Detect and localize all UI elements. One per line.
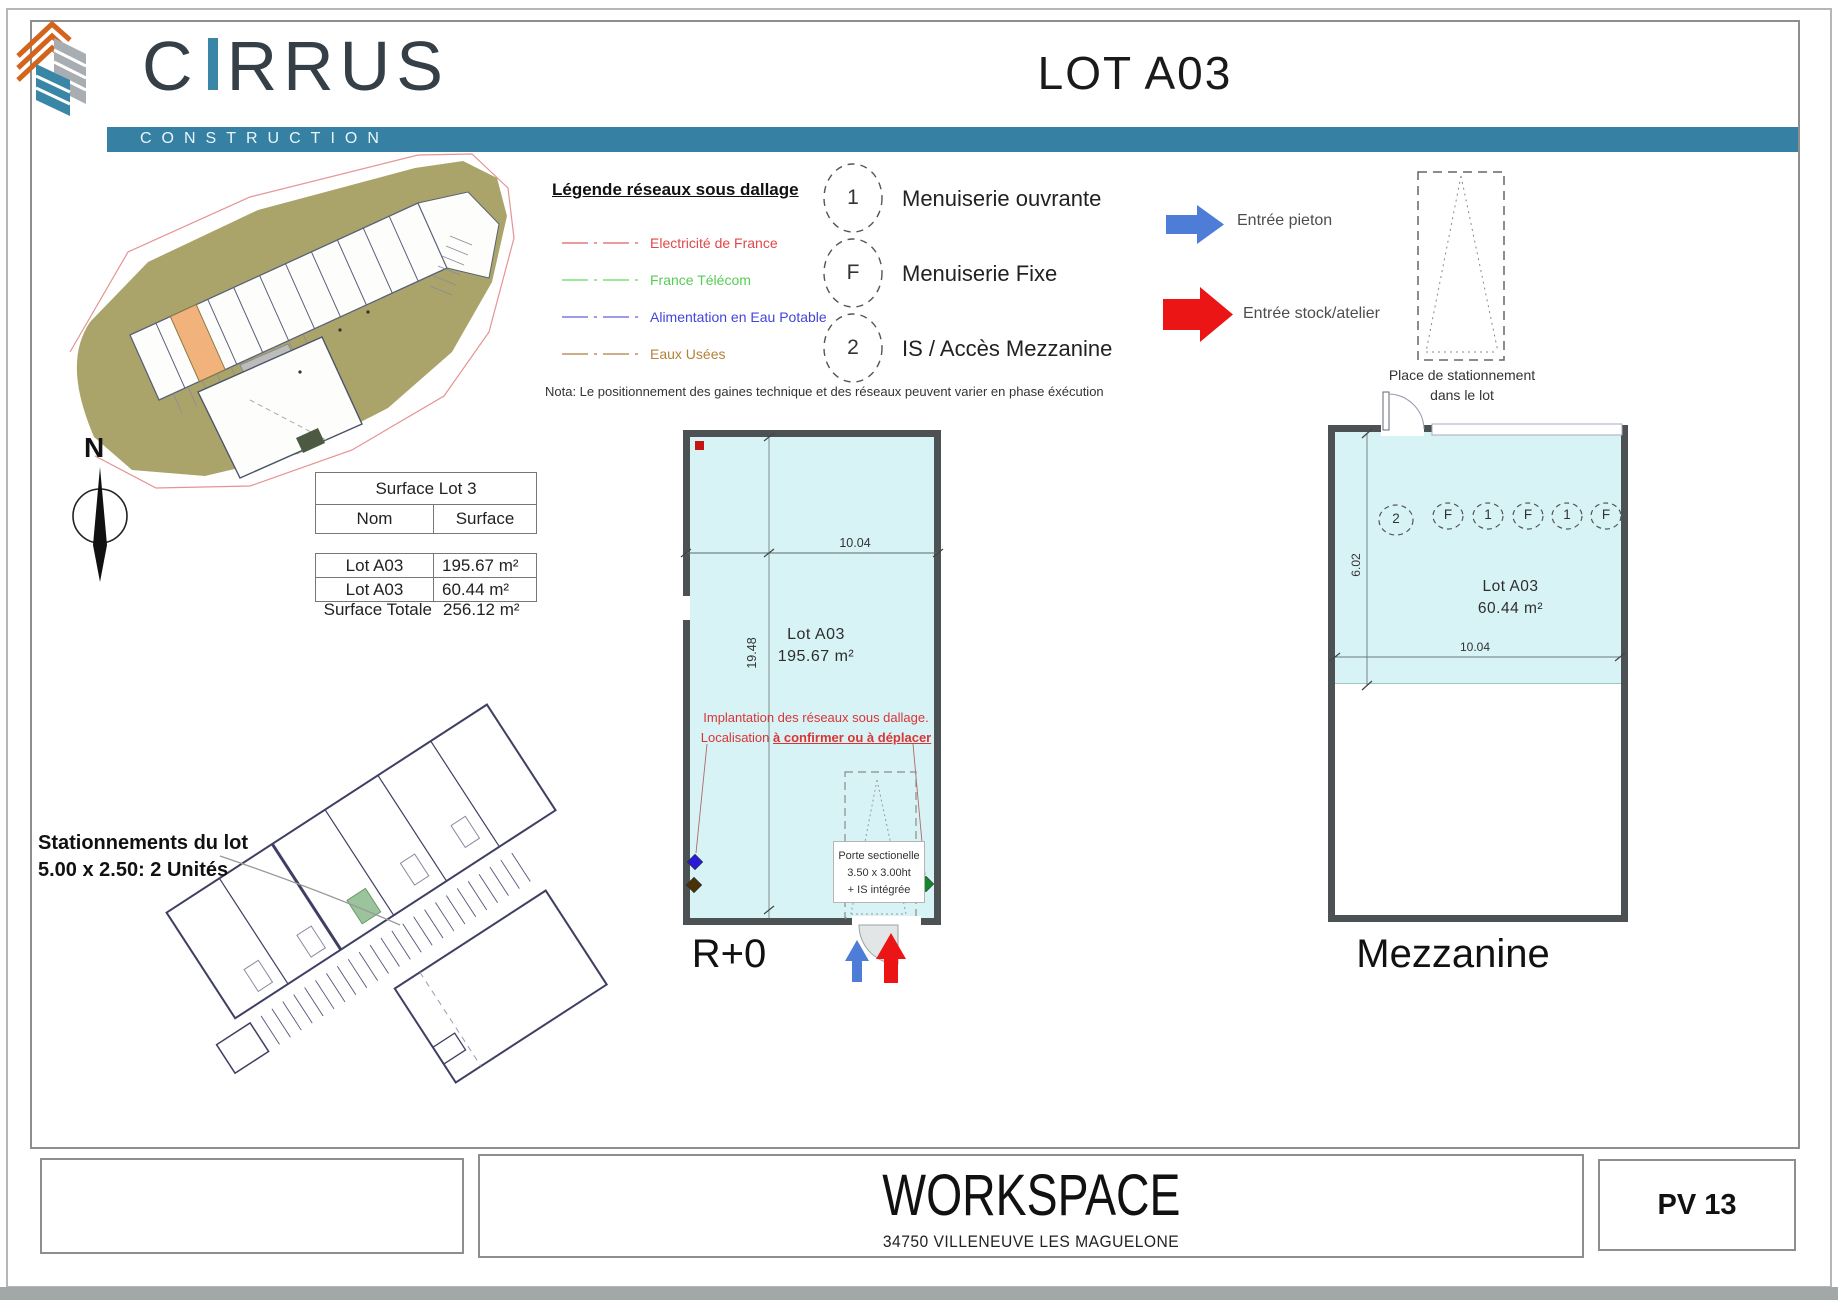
parking-plan-drawing [141, 705, 650, 1181]
legend-item-eau: Alimentation en Eau Potable [650, 309, 827, 325]
project-address: 34750 VILLENEUVE LES MAGUELONE [480, 1232, 1582, 1252]
north-compass-icon [73, 467, 127, 582]
mz-symbol-1: F [1433, 507, 1463, 522]
surface-col-nom: Nom [316, 505, 434, 533]
cirrus-logo-icon [18, 24, 86, 116]
network-marker-blue [687, 854, 703, 870]
legend-item-edf: Electricité de France [650, 235, 778, 251]
parking-space-symbol [1418, 172, 1504, 360]
brand-logo-text: CIRRUSCRRUS [142, 26, 449, 106]
project-name: WORKSPACE [480, 1162, 1582, 1229]
mz-lot-area: 60.44 m² [1448, 600, 1573, 618]
plan-sheet: CIRRUSCRRUS CONSTRUCTION LOT A03 N Légen… [0, 0, 1838, 1300]
r0-floor-label: R+0 [664, 932, 794, 977]
opening-label-fixe: Menuiserie Fixe [902, 261, 1057, 287]
table-row: Lot A03 60.44 m² [316, 578, 536, 601]
mz-height-dim: 6.02 [1349, 545, 1363, 585]
legend-network-lines [562, 243, 642, 354]
site-plan-drawing [70, 154, 514, 488]
r0-lot-name: Lot A03 [756, 626, 876, 644]
mz-symbol-0: 2 [1381, 511, 1411, 526]
opening-symbol-2: 2 [833, 336, 873, 360]
brand-i-bar [208, 38, 218, 90]
r0-width-dim: 10.04 [825, 536, 885, 550]
mz-symbol-2: 1 [1473, 507, 1503, 522]
legend-nota: Nota: Le positionnement des gaines techn… [545, 384, 1104, 399]
r0-network-warning: Implantation des réseaux sous dallage. L… [696, 708, 936, 748]
mz-symbol-4: 1 [1552, 507, 1582, 522]
mezzanine-window-band [1432, 424, 1622, 435]
footer-sheet-box: PV 13 [1598, 1159, 1796, 1251]
electric-box-marker [695, 441, 704, 450]
pedestrian-entry-arrow-icon [1166, 205, 1224, 244]
opening-label-ouvrante: Menuiserie ouvrante [902, 186, 1101, 212]
surface-table-title: Surface Lot 3 [316, 473, 536, 505]
mz-width-dim: 10.04 [1445, 640, 1505, 654]
opening-symbol-1: 1 [833, 186, 873, 210]
surface-table-header: Surface Lot 3 Nom Surface [315, 472, 537, 534]
mz-floor-label: Mezzanine [1328, 932, 1578, 977]
stock-entry-label: Entrée stock/atelier [1243, 305, 1380, 323]
mz-symbol-3: F [1513, 507, 1543, 522]
legend-networks-title: Légende réseaux sous dallage [552, 180, 799, 200]
sectional-door-note: Porte sectionelle 3.50 x 3.00ht + IS int… [833, 841, 925, 903]
footer-title-box: WORKSPACE 34750 VILLENEUVE LES MAGUELONE [478, 1154, 1584, 1258]
sheet-number: PV 13 [1600, 1161, 1794, 1249]
parking-annotation: Stationnements du lot 5.00 x 2.50: 2 Uni… [38, 830, 248, 884]
pedestrian-entry-label: Entrée pieton [1237, 212, 1332, 230]
network-marker-brown [686, 877, 702, 893]
opening-label-is-mezzanine: IS / Accès Mezzanine [902, 336, 1112, 362]
surface-table-body: Lot A03 195.67 m² Lot A03 60.44 m² [315, 553, 537, 602]
mz-symbol-5: F [1591, 507, 1621, 522]
table-row: Lot A03 195.67 m² [316, 554, 536, 578]
brand-tagline: CONSTRUCTION [140, 130, 389, 148]
legend-item-eaux-usees: Eaux Usées [650, 346, 725, 362]
north-label: N [84, 432, 104, 464]
mz-lot-name: Lot A03 [1448, 578, 1573, 596]
footer-empty-box [40, 1158, 464, 1254]
parking-space-label: Place de stationnement dans le lot [1380, 366, 1544, 405]
opening-symbol-f: F [833, 261, 873, 285]
stock-entry-arrow-icon [1163, 287, 1233, 342]
surface-col-surface: Surface [434, 505, 536, 533]
surface-total-value: 256.12 m² [443, 600, 520, 620]
legend-item-telecom: France Télécom [650, 272, 751, 288]
surface-total-label: Surface Totale [315, 600, 432, 620]
r0-lot-area: 195.67 m² [756, 648, 876, 666]
sheet-title: LOT A03 [885, 46, 1385, 100]
